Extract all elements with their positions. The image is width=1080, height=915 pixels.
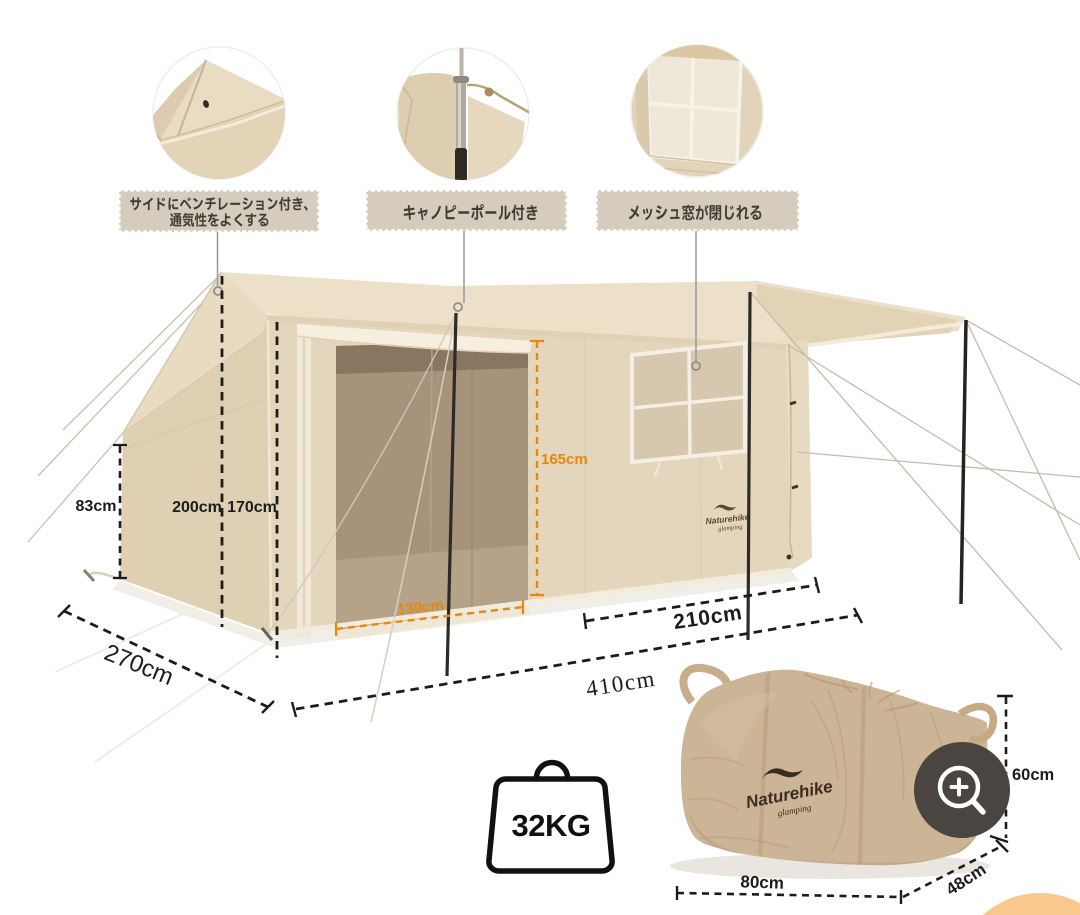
svg-text:32KG: 32KG (512, 808, 591, 843)
svg-text:80cm: 80cm (740, 872, 784, 893)
svg-text:60cm: 60cm (1012, 766, 1054, 784)
svg-text:170cm: 170cm (227, 499, 277, 516)
svg-text:200cm: 200cm (172, 499, 222, 516)
svg-text:165cm: 165cm (541, 451, 588, 468)
svg-text:83cm: 83cm (76, 498, 117, 515)
